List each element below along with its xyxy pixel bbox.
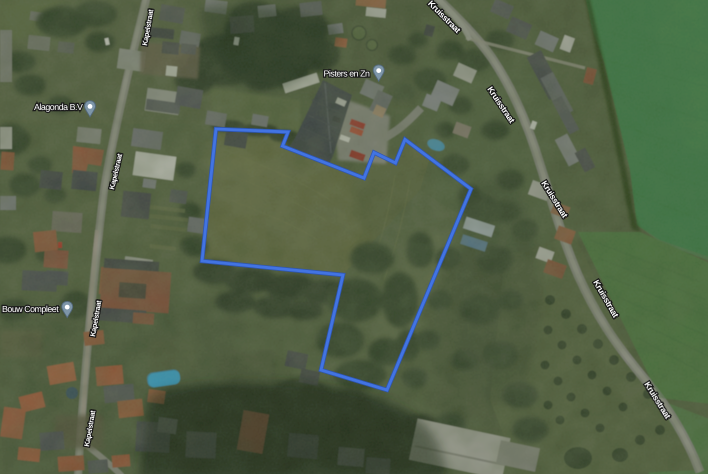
svg-text:Bouw Compleet: Bouw Compleet <box>2 304 59 314</box>
svg-text:Pisters en Zn: Pisters en Zn <box>324 69 371 79</box>
svg-text:Alagonda B.V: Alagonda B.V <box>34 102 83 112</box>
